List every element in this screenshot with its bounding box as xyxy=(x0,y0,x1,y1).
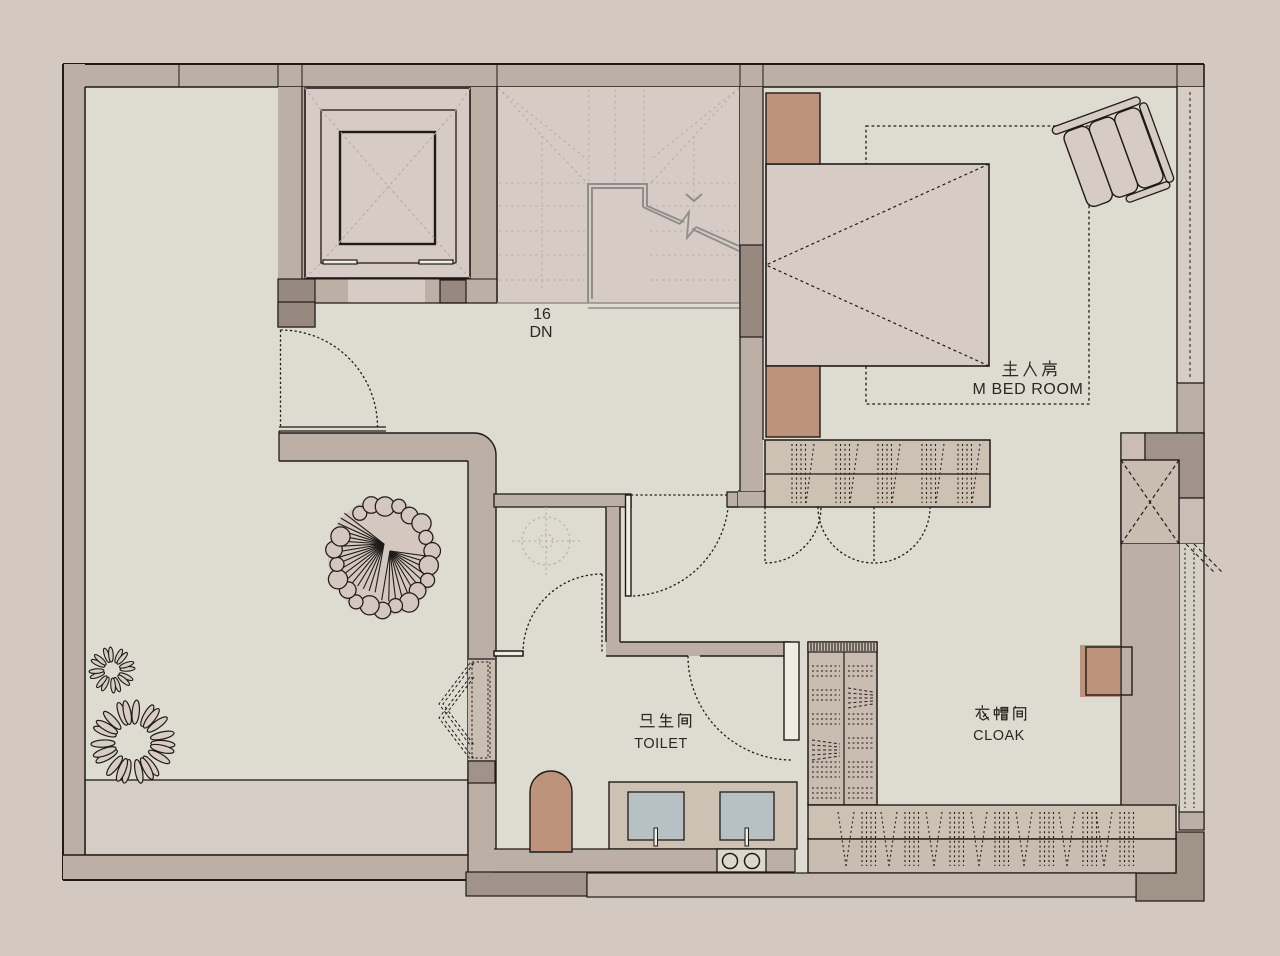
svg-text:M BED ROOM: M BED ROOM xyxy=(973,381,1084,398)
svg-text:16: 16 xyxy=(533,306,551,323)
svg-text:DN: DN xyxy=(529,324,552,341)
svg-text:TOILET: TOILET xyxy=(634,736,688,752)
svg-text:CLOAK: CLOAK xyxy=(973,728,1025,744)
